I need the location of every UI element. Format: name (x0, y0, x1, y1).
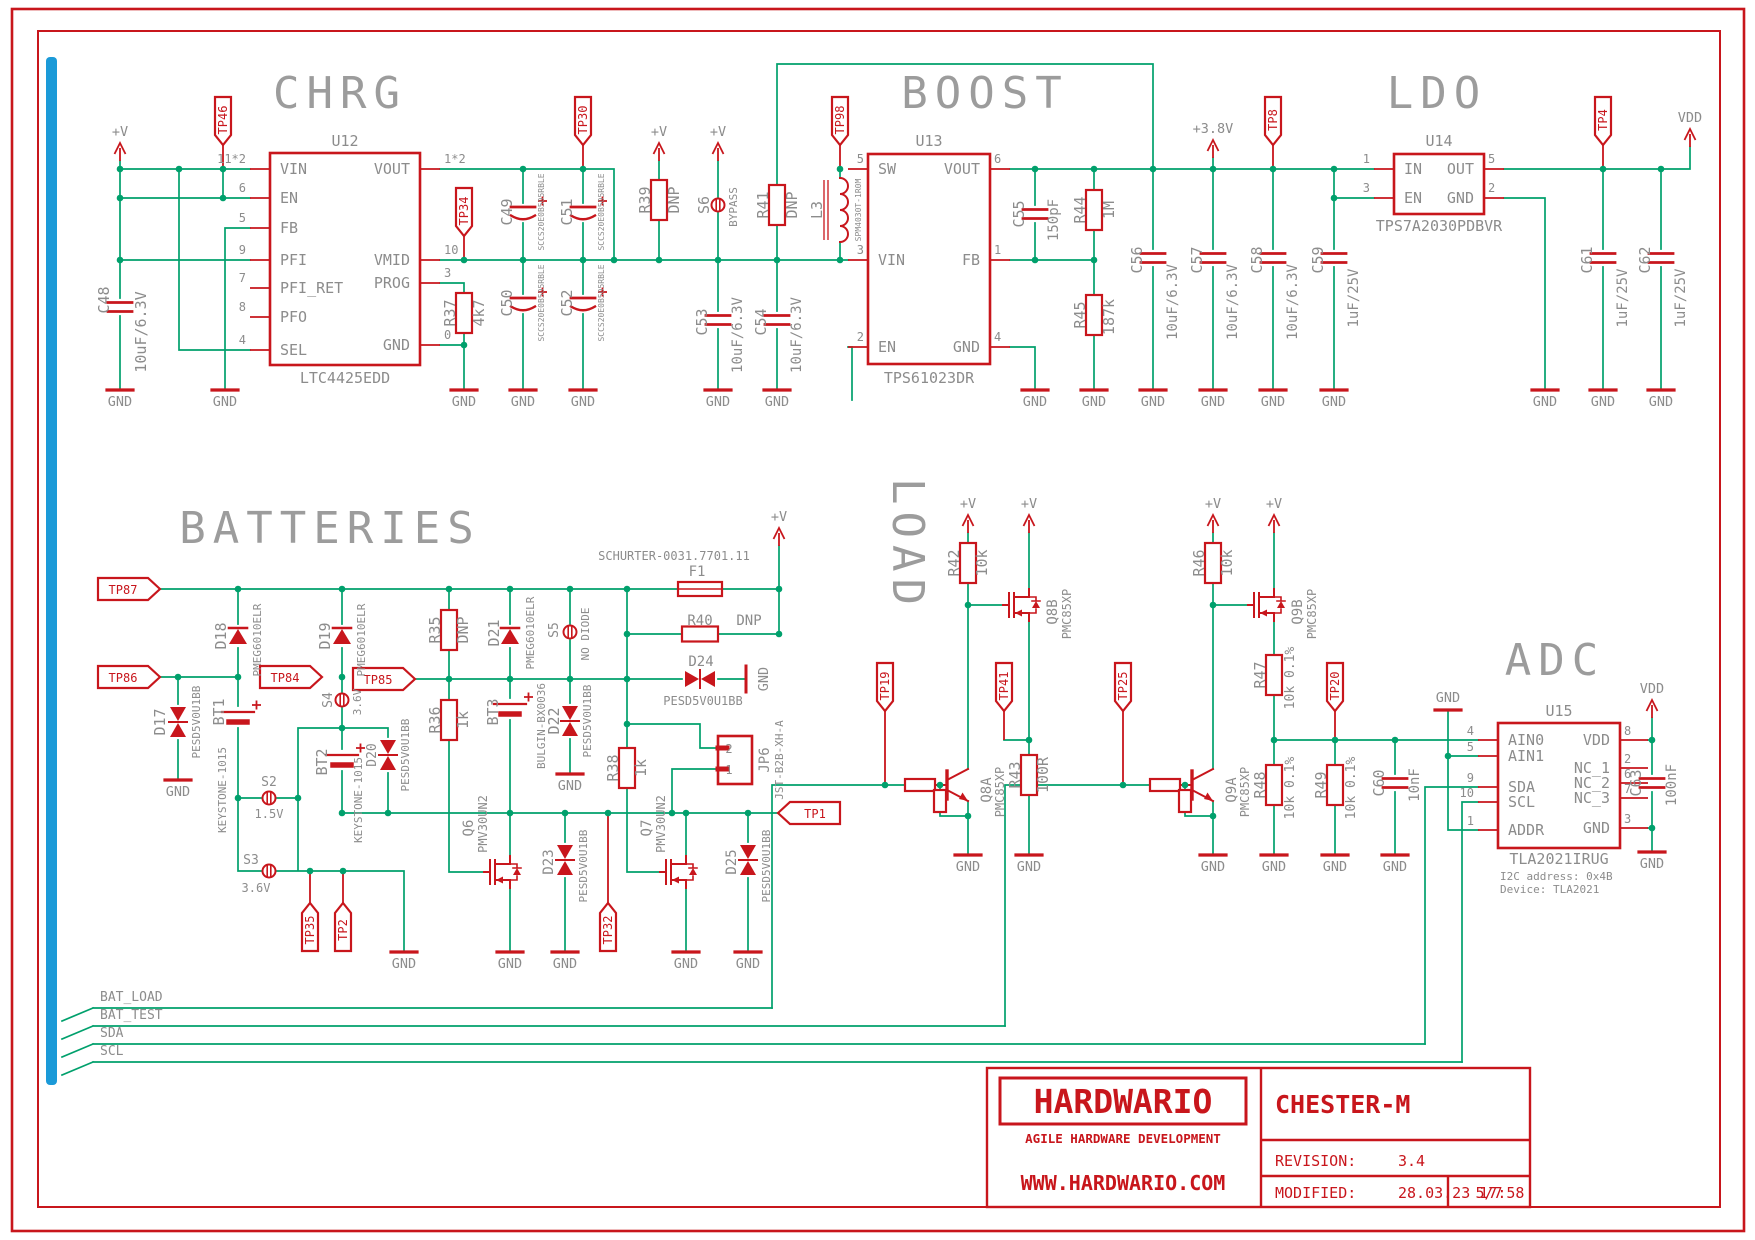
c54-ref: C54 (752, 308, 770, 335)
vdd-label: VDD (1678, 110, 1702, 126)
r42-ref: R42 (945, 549, 963, 576)
u14-pin: OUT (1447, 160, 1474, 178)
u13-part: TPS61023DR (884, 369, 975, 387)
mosfet-q6 (484, 856, 521, 888)
revision-value: 3.4 (1398, 1152, 1425, 1170)
u12-pin: PROG (374, 274, 410, 292)
r41-val: DNP (783, 191, 801, 218)
u12-pin: VOUT (374, 160, 410, 178)
r41-ref: R41 (754, 191, 772, 218)
tvs-d17 (169, 707, 187, 737)
r36-ref: R36 (426, 706, 444, 733)
d17-val: PESD5V0U1BB (190, 685, 203, 758)
bt3-ref: BT3 (484, 698, 502, 725)
plusv-label: +V (1205, 496, 1221, 512)
net-bat-load: BAT_LOAD (100, 990, 163, 1005)
q7-val: PMV30UN2 (654, 795, 668, 853)
bt1-val: KEYSTONE-1015 (216, 747, 229, 833)
u13-pinnum: 1 (994, 243, 1001, 257)
gnd-label: GND (765, 394, 789, 410)
tp34-label: TP34 (457, 197, 471, 226)
gnd-label: GND (756, 667, 772, 691)
q9b-val: PMC85XP (1305, 589, 1319, 640)
r36-val: 1k (454, 711, 472, 729)
u12-pin: VIN (280, 160, 307, 178)
c54-val: 10uF/6.3V (789, 297, 805, 373)
r43-ref: R43 (1006, 761, 1024, 788)
gnd-label: GND (571, 394, 595, 410)
jumper-s2 (263, 792, 276, 805)
r38-ref: R38 (604, 754, 622, 781)
r40-ref: R40 (687, 613, 712, 629)
u13-pinnum: 2 (857, 330, 864, 344)
q9b-ref: Q9B (1290, 599, 1306, 624)
s3-ref: S3 (243, 853, 259, 868)
gnd-label: GND (956, 859, 980, 875)
fuse-f1 (678, 582, 722, 596)
u12-pinnum: 4 (239, 333, 246, 347)
d25-ref: D25 (724, 849, 740, 874)
tp8-label: TP8 (1266, 109, 1280, 131)
u15-pin: NC_3 (1574, 789, 1610, 807)
d22-val: PESD5V0U1BB (581, 684, 594, 757)
c61-ref: C61 (1578, 246, 1596, 273)
u12-pin: PFO (280, 308, 307, 326)
tp19-label: TP19 (878, 672, 892, 701)
f1-ref: F1 (689, 564, 706, 580)
s4-val: 3.6V (351, 688, 364, 715)
d20-ref: D20 (365, 743, 380, 766)
gnd-label: GND (1591, 394, 1615, 410)
r35-val: DNP (454, 616, 472, 643)
title-batteries: BATTERIES (179, 503, 480, 554)
u12-pin: FB (280, 219, 298, 237)
u15-pinnum: 5 (1467, 740, 1474, 754)
gnd-label: GND (1322, 394, 1346, 410)
c50-ref: C50 (498, 289, 516, 316)
u12-pinnum: 3 (444, 266, 451, 280)
u15-pinnum: 3 (1624, 812, 1631, 826)
gnd-label: GND (1017, 859, 1041, 875)
u14-pin: GND (1447, 189, 1474, 207)
title-load: LOAD (882, 478, 933, 612)
s2-ref: S2 (261, 775, 277, 790)
u13-pinnum: 4 (994, 330, 1001, 344)
gnd-label: GND (1141, 394, 1165, 410)
c60-ref: C60 (1370, 769, 1388, 796)
u12-ref: U12 (331, 132, 358, 150)
u14-part: TPS7A2030PDBVR (1376, 217, 1503, 235)
u14-pinnum: 5 (1488, 152, 1495, 166)
u15-pinnum: 8 (1624, 724, 1631, 738)
u13-pinnum: 5 (857, 152, 864, 166)
u12-pinnum: 0 (444, 328, 451, 342)
d18-ref: D18 (212, 622, 230, 649)
diode-d21 (501, 628, 519, 644)
u13-pinnum: 3 (857, 243, 864, 257)
r39-val: DNP (665, 186, 683, 213)
u12-pin: SEL (280, 341, 307, 359)
s4-ref: S4 (321, 692, 336, 708)
project-name: CHESTER-M (1275, 1090, 1410, 1119)
tp25-label: TP25 (1116, 672, 1130, 701)
gnd-label: GND (1649, 394, 1673, 410)
v38-label: +3.8V (1193, 121, 1234, 137)
d23-ref: D23 (541, 849, 557, 874)
gnd-label: GND (1436, 690, 1460, 706)
diode-d19 (333, 628, 351, 644)
d17-ref: D17 (151, 708, 169, 735)
u12-part: LTC4425EDD (300, 369, 390, 387)
d21-val: PMEG6010ELR (524, 596, 537, 669)
bt2-val: KEYSTONE-1015 (352, 757, 365, 843)
mosfet-q8b (1003, 589, 1040, 621)
u12-pinnum: 6 (239, 181, 246, 195)
d18-val: PMEG6010ELR (251, 603, 264, 676)
tp84-label: TP84 (271, 671, 300, 685)
d20-val: PESD5V0U1BB (399, 718, 412, 791)
l3-val: SPM4030T-1R0M (854, 179, 863, 242)
mosfet-q9b (1248, 589, 1285, 621)
r35-ref: R35 (426, 616, 444, 643)
u12-pinnum: 1*2 (444, 152, 466, 166)
res-q9a-base (1150, 779, 1180, 791)
u14-pin: IN (1404, 160, 1422, 178)
u12-pinnum: 8 (239, 300, 246, 314)
r44-ref: R44 (1071, 196, 1089, 223)
r45-val: 187k (1100, 299, 1118, 335)
q9a-val: PMC85XP (1238, 767, 1252, 818)
u13-ref: U13 (915, 132, 942, 150)
r37-ref: R37 (441, 299, 459, 326)
s6-val: BYPASS (727, 187, 740, 227)
u15-note2: Device: TLA2021 (1500, 883, 1599, 896)
u15-pin: GND (1583, 819, 1610, 837)
jp6-pin1: 1 (725, 763, 732, 777)
d22-ref: D22 (545, 707, 563, 734)
gnd-label: GND (108, 394, 132, 410)
brand-logo: HARDWARIO (1034, 1082, 1213, 1121)
u14-pinnum: 2 (1488, 181, 1495, 195)
r47-ref: R47 (1251, 661, 1269, 688)
gnd-label: GND (1383, 859, 1407, 875)
d19-val: PMEG6010ELR (355, 603, 368, 676)
tp46-label: TP46 (216, 106, 230, 135)
jumper-s4 (336, 694, 349, 707)
u13-pin: VIN (878, 251, 905, 269)
c51-ref: C51 (558, 198, 576, 225)
c56-val: 10uF/6.3V (1165, 264, 1181, 340)
bt1-ref: BT1 (210, 698, 228, 725)
tp41-label: TP41 (997, 672, 1011, 701)
u15-pinnum: 1 (1467, 814, 1474, 828)
res-q9a-bias (1179, 790, 1191, 812)
gnd-label: GND (1261, 394, 1285, 410)
c59-val: 1uF/25V (1346, 268, 1362, 328)
tvs-d20 (379, 740, 397, 770)
diode-d18 (229, 628, 247, 644)
title-ldo: LDO (1387, 68, 1487, 119)
u12-pin: EN (280, 189, 298, 207)
u13-pinnum: 6 (994, 152, 1001, 166)
u15-pinnum: 4 (1467, 724, 1474, 738)
u15-pinnum: 9 (1467, 771, 1474, 785)
q8a-val: PMC85XP (993, 767, 1007, 818)
schematic-page: CHRG BOOST LDO BATTERIES LOAD ADC GNDGND… (0, 0, 1755, 1240)
brand-site: WWW.HARDWARIO.COM (1021, 1171, 1226, 1195)
c62-ref: C62 (1636, 246, 1654, 273)
u13-pin: VOUT (944, 160, 980, 178)
bt2-ref: BT2 (313, 748, 331, 775)
c59-ref: C59 (1309, 246, 1327, 273)
gnd-label: GND (553, 956, 577, 972)
tp98-label: TP98 (833, 106, 847, 135)
gnd-label: GND (1323, 859, 1347, 875)
l3-ref: L3 (808, 201, 826, 219)
vdd-label: VDD (1640, 681, 1664, 697)
u15-note1: I2C address: 0x4B (1500, 870, 1613, 883)
u12-pinnum: 10 (444, 243, 458, 257)
f1-val: SCHURTER-0031.7701.11 (598, 549, 750, 563)
q6-val: PMV30UN2 (476, 795, 490, 853)
net-bat-test: BAT_TEST (100, 1008, 163, 1023)
u15-pinnum: 2 (1624, 752, 1631, 766)
r44-val: 1M (1100, 201, 1118, 219)
sheet-number: 5/7 (1475, 1184, 1502, 1202)
modified-value: 28.03.23 17:58 (1398, 1184, 1524, 1202)
plusv-label: +V (651, 124, 667, 140)
jumper-s5 (564, 626, 577, 639)
tp20-label: TP20 (1328, 672, 1342, 701)
r47-val: 10k 0.1% (1283, 647, 1298, 710)
net-labels: BAT_LOAD BAT_TEST SDA SCL (100, 990, 163, 1059)
gnd-label: GND (452, 394, 476, 410)
tp4-label: TP4 (1596, 109, 1610, 131)
s6-ref: S6 (695, 196, 713, 214)
u14-ref: U14 (1425, 132, 1452, 150)
c58-ref: C58 (1248, 246, 1266, 273)
c56-ref: C56 (1128, 246, 1146, 273)
r43-val: 100R (1034, 756, 1052, 793)
gnd-label: GND (736, 956, 760, 972)
u15-part: TLA2021IRUG (1509, 850, 1608, 868)
d19-ref: D19 (316, 622, 334, 649)
u15-pin: SCL (1508, 793, 1535, 811)
u15-pin: ADDR (1508, 821, 1545, 839)
modified-label: MODIFIED: (1275, 1184, 1356, 1202)
gnd-label: GND (1201, 859, 1225, 875)
c63-val: 100nF (1664, 764, 1680, 806)
plusv-label: +V (771, 509, 787, 525)
r46-val: 10k (1218, 549, 1236, 576)
res-q8a-bias (934, 790, 946, 812)
title-boost: BOOST (901, 68, 1068, 119)
gnd-label: GND (1082, 394, 1106, 410)
u12-pin: GND (383, 336, 410, 354)
u15-pin: VDD (1583, 731, 1610, 749)
inductor-l3 (840, 178, 848, 242)
tvs-d24 (685, 670, 715, 688)
tp30-label: TP30 (576, 106, 590, 135)
d24-val: PESD5V0U1BB (663, 694, 742, 708)
brand-tagline: AGILE HARDWARE DEVELOPMENT (1025, 1131, 1221, 1146)
c57-ref: C57 (1188, 246, 1206, 273)
tvs-d25 (739, 845, 757, 875)
plusv-label: +V (960, 496, 976, 512)
tvs-d22 (561, 706, 579, 736)
c53-ref: C53 (693, 308, 711, 335)
plusv-label: +V (1266, 496, 1282, 512)
c50-val: SCCS20E0B505RBLE (537, 264, 546, 341)
u12-pin: PFI (280, 251, 307, 269)
r49-ref: R49 (1312, 771, 1330, 798)
res-q8a-base (905, 779, 935, 791)
r45-ref: R45 (1071, 301, 1089, 328)
c57-val: 10uF/6.3V (1225, 264, 1241, 340)
tp35-label: TP35 (303, 916, 317, 945)
c63-ref: C63 (1627, 769, 1645, 796)
q8b-val: PMC85XP (1060, 589, 1074, 640)
c61-val: 1uF/25V (1615, 268, 1631, 328)
u15-pinnum: 10 (1460, 786, 1474, 800)
tp2-label: TP2 (336, 919, 350, 941)
net-scl: SCL (100, 1044, 124, 1059)
r48-ref: R48 (1251, 771, 1269, 798)
title-chrg: CHRG (273, 68, 407, 119)
u12-pinnum: 11*2 (217, 152, 246, 166)
jumper-s6 (712, 199, 725, 212)
gnd-label: GND (166, 784, 190, 800)
jp6-val: JST-B2B-XH-A (773, 720, 786, 800)
net-sda: SDA (100, 1026, 124, 1041)
revision-label: REVISION: (1275, 1152, 1356, 1170)
u14-pin: EN (1404, 189, 1422, 207)
u12-pinnum: 5 (239, 211, 246, 225)
r39-ref: R39 (636, 186, 654, 213)
r42-val: 10k (973, 549, 991, 576)
gnd-label: GND (674, 956, 698, 972)
c58-val: 10uF/6.3V (1285, 264, 1301, 340)
r37-val: 4k7 (470, 299, 488, 326)
q7-ref: Q7 (639, 820, 655, 837)
jumper-s3 (263, 865, 276, 878)
plusv-label: +V (112, 124, 128, 140)
bus-bar (46, 57, 57, 1085)
c53-val: 10uF/6.3V (730, 297, 746, 373)
s5-ref: S5 (547, 622, 562, 638)
c55-ref: C55 (1010, 200, 1028, 227)
gnd-label: GND (392, 956, 416, 972)
gnd-label: GND (511, 394, 535, 410)
gnd-label: GND (558, 778, 582, 794)
c60-val: 10nF (1407, 768, 1423, 802)
title-block: HARDWARIO AGILE HARDWARE DEVELOPMENT WWW… (987, 1068, 1530, 1207)
gnd-label: GND (1201, 394, 1225, 410)
d21-ref: D21 (485, 619, 503, 646)
title-adc: ADC (1505, 635, 1605, 686)
plusv-label: +V (1021, 496, 1037, 512)
u12-pinnum: 9 (239, 243, 246, 257)
u13-pin: FB (962, 251, 980, 269)
c52-val: SCCS20E0B505RBLE (597, 264, 606, 341)
c51-val: SCCS20E0B505RBLE (597, 173, 606, 250)
c52-ref: C52 (558, 289, 576, 316)
d24-ref: D24 (688, 654, 713, 670)
s3-val: 3.6V (242, 881, 271, 895)
jp6-pin2: 2 (725, 742, 732, 756)
u14-pinnum: 1 (1363, 152, 1370, 166)
u12-pin: VMID (374, 251, 410, 269)
u15-ref: U15 (1545, 702, 1572, 720)
q6-ref: Q6 (461, 820, 477, 837)
d25-val: PESD5V0U1BB (760, 829, 773, 902)
tp1-label: TP1 (804, 807, 826, 821)
r48-val: 10k 0.1% (1283, 757, 1298, 820)
gnd-label: GND (1023, 394, 1047, 410)
jp6-ref: JP6 (757, 747, 773, 772)
gnd-label: GND (706, 394, 730, 410)
gnd-label: GND (498, 956, 522, 972)
tp86-label: TP86 (109, 671, 138, 685)
c55-val: 150pF (1046, 199, 1062, 241)
inner-border (38, 31, 1720, 1207)
connector-jp6 (718, 736, 752, 784)
r40-val: DNP (736, 613, 761, 629)
s2-val: 1.5V (255, 807, 284, 821)
tp87-label: TP87 (109, 583, 138, 597)
r49-val: 10k 0.1% (1344, 757, 1359, 820)
gnd-label: GND (1533, 394, 1557, 410)
c48-val: 10uF/6.3V (132, 291, 150, 372)
gnd-label: GND (1262, 859, 1286, 875)
plusv-label: +V (710, 124, 726, 140)
u12-pinnum: 7 (239, 271, 246, 285)
mosfet-q7 (660, 856, 697, 888)
tvs-d23 (556, 845, 574, 875)
c49-val: SCCS20E0B505RBLE (537, 173, 546, 250)
u13-pin: GND (953, 338, 980, 356)
c62-val: 1uF/25V (1673, 268, 1689, 328)
r38-val: 1k (632, 759, 650, 777)
u12-pin: PFI_RET (280, 279, 343, 297)
u14-pinnum: 3 (1363, 181, 1370, 195)
gnd-label: GND (213, 394, 237, 410)
q8b-ref: Q8B (1045, 599, 1061, 624)
s5-val: NO DIODE (579, 608, 592, 661)
c49-ref: C49 (498, 198, 516, 225)
r46-ref: R46 (1190, 549, 1208, 576)
u13-pin: EN (878, 338, 896, 356)
u15-pin: AIN1 (1508, 747, 1544, 765)
tp32-label: TP32 (601, 916, 615, 945)
u13-pin: SW (878, 160, 897, 178)
c48-ref: C48 (95, 286, 113, 313)
d23-val: PESD5V0U1BB (577, 829, 590, 902)
gnd-label: GND (1640, 856, 1664, 872)
